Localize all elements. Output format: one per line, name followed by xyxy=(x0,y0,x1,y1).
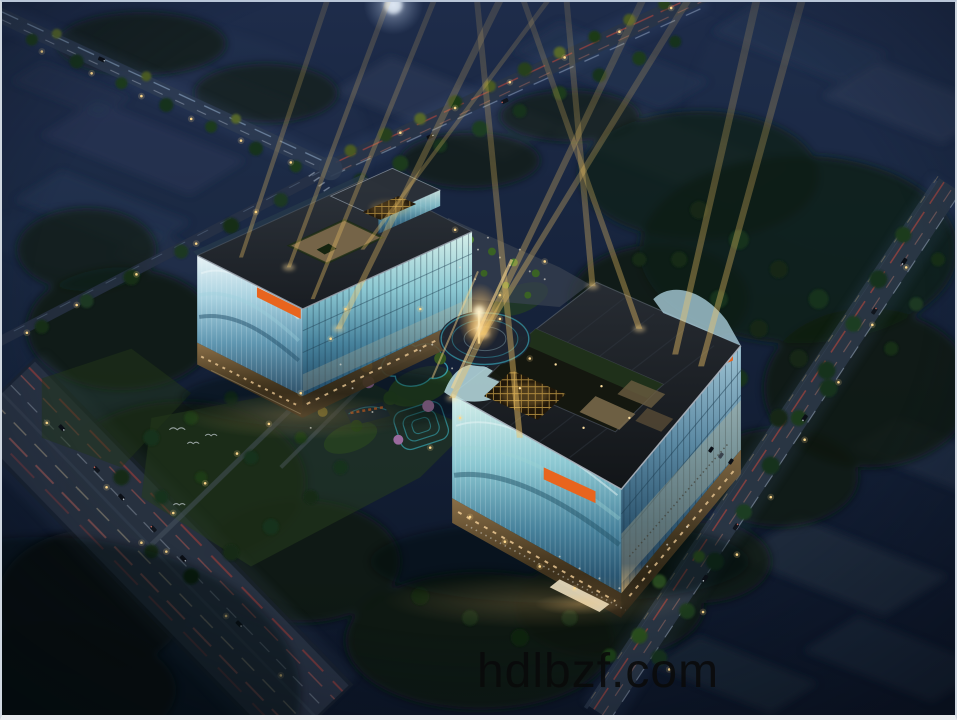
scene-canvas xyxy=(2,2,955,715)
architectural-night-rendering: hdlbzf.com xyxy=(0,0,957,720)
watermark-text: hdlbzf.com xyxy=(477,644,719,699)
